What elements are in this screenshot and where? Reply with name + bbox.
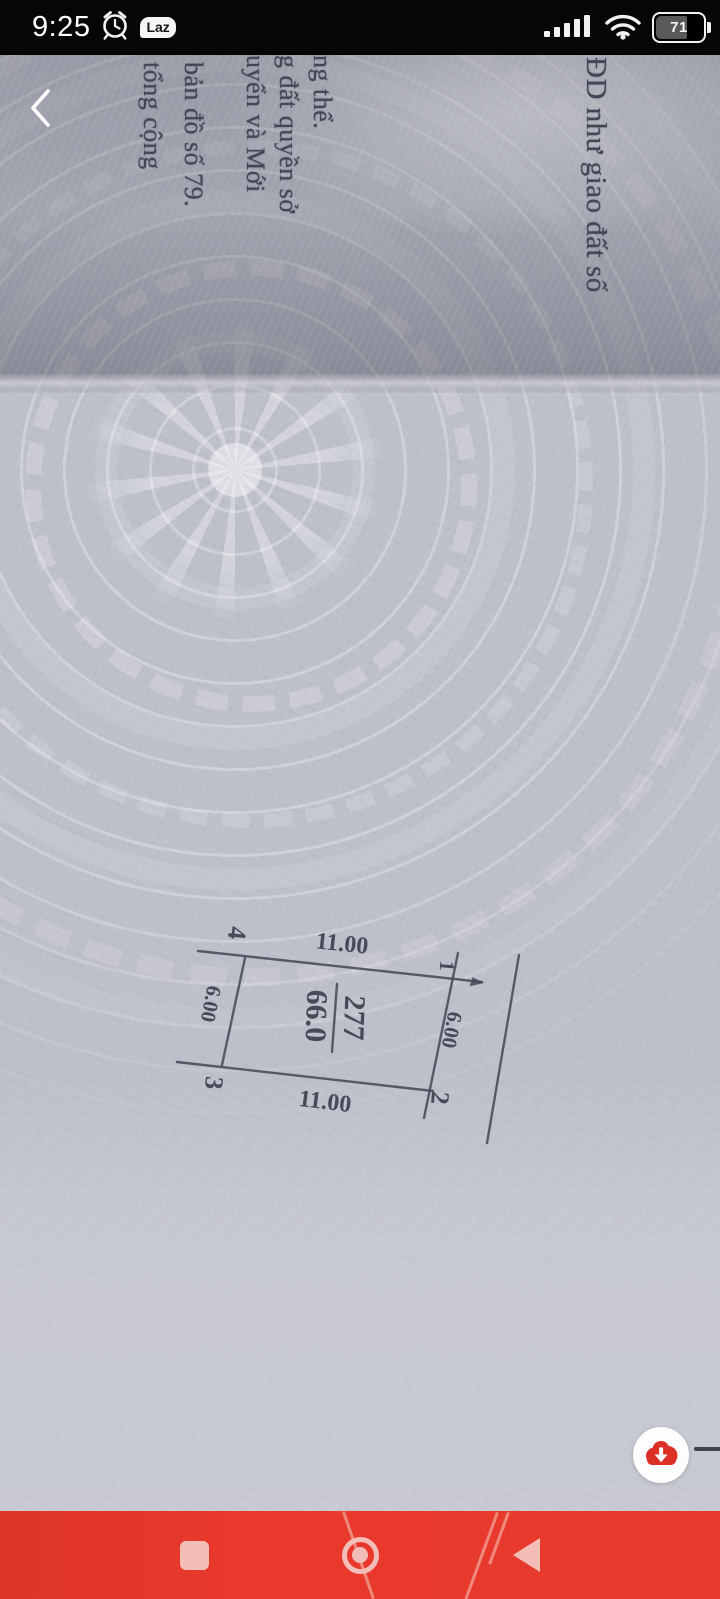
status-bar: 9:25 Laz: [0, 0, 720, 55]
parcel-diagram: 11.00 11.00 6.00 6.00 277 66.0 1 2 3 4: [150, 875, 550, 1165]
cloud-download-icon: [641, 1439, 681, 1472]
navigation-bar: [0, 1511, 720, 1599]
document-text-line: bản đồ số 79.: [178, 62, 208, 207]
chevron-left-icon: [26, 117, 56, 132]
signal-icon: [542, 11, 594, 44]
document-text-line: tổng cộng: [137, 62, 167, 170]
dimension-label-top: 11.00: [314, 928, 369, 959]
dimension-label-bottom: 11.00: [297, 1086, 352, 1118]
alarm-icon: [100, 8, 130, 47]
page-fold-shadow: [0, 55, 720, 393]
circle-icon: [342, 1537, 379, 1574]
recents-button[interactable]: [134, 1511, 254, 1599]
parcel-area: 66.0: [299, 989, 334, 1043]
photo-edge-mark: [694, 1447, 720, 1451]
download-button[interactable]: [633, 1427, 689, 1483]
triangle-left-icon: [513, 1538, 540, 1572]
battery-percent: 71: [670, 19, 688, 36]
photo-viewer[interactable]: ĐD như giao đất số ng thể. g đất quyền s…: [0, 55, 720, 1511]
back-nav-button[interactable]: [466, 1511, 586, 1599]
document-text-line: ĐD như giao đất số: [579, 57, 612, 293]
phone-screen: 9:25 Laz: [0, 0, 720, 1599]
home-button[interactable]: [300, 1511, 420, 1599]
vertex-label-2: 2: [425, 1090, 455, 1105]
dimension-label-right: 6.00: [437, 1010, 468, 1051]
page-fold-highlight: [0, 373, 720, 395]
lazada-notification-icon: Laz: [140, 17, 175, 38]
document-text-line: uyển và Mới: [240, 55, 270, 193]
status-time: 9:25: [32, 11, 90, 44]
wifi-icon: [603, 10, 643, 45]
vertex-label-1: 1: [435, 960, 460, 973]
parcel-number: 277: [337, 995, 372, 1041]
vertex-label-4: 4: [222, 925, 252, 940]
square-icon: [180, 1541, 209, 1570]
battery-cap: [707, 22, 711, 33]
vertex-label-3: 3: [199, 1075, 229, 1090]
document-text-line: g đất quyền sở: [273, 55, 303, 214]
battery-indicator: 71: [652, 12, 706, 43]
status-bar-left: 9:25 Laz: [0, 8, 176, 47]
document-text-line: ng thể.: [307, 55, 337, 129]
dimension-label-left: 6.00: [196, 984, 227, 1025]
back-button[interactable]: [24, 84, 58, 132]
status-bar-right: 71: [542, 10, 720, 45]
